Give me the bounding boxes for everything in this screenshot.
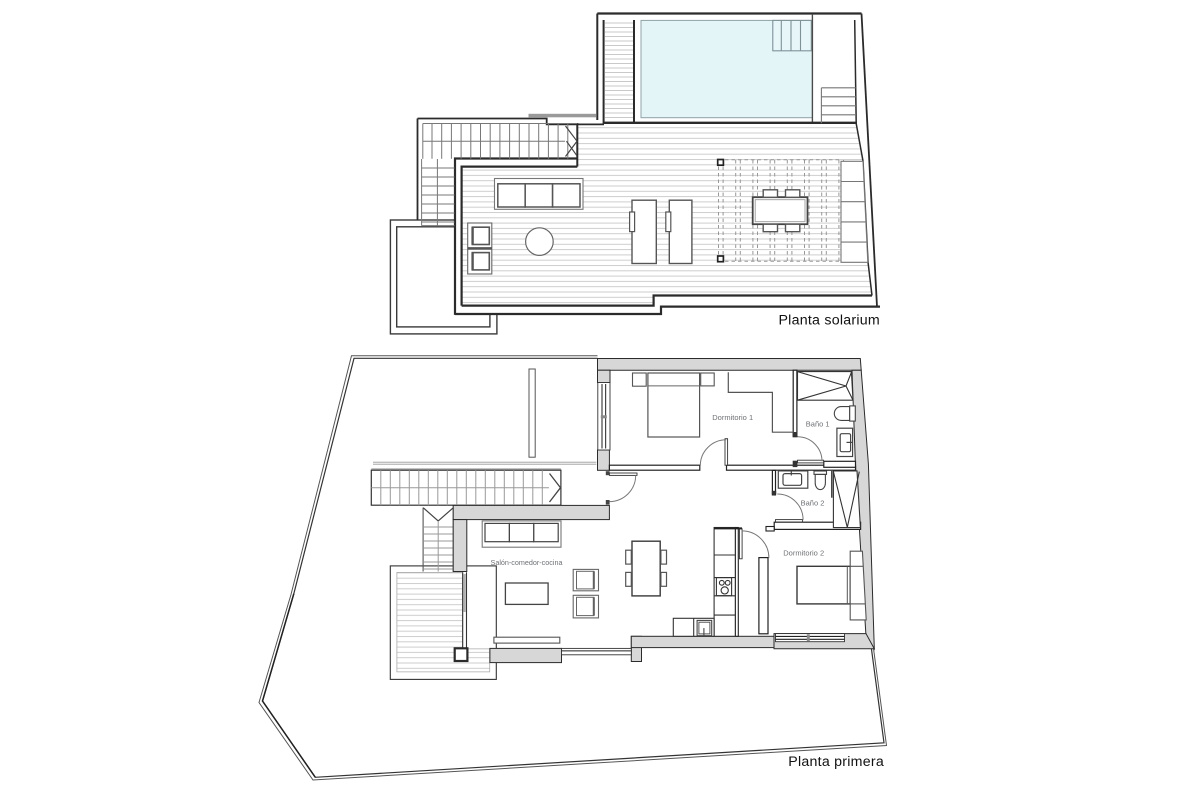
svg-text:Baño 2: Baño 2: [801, 499, 825, 508]
svg-text:Dormitorio 2: Dormitorio 2: [783, 549, 824, 558]
svg-text:Salón-comedor-cocina: Salón-comedor-cocina: [491, 558, 563, 567]
svg-text:Dormitorio 1: Dormitorio 1: [712, 413, 753, 422]
svg-text:Planta solarium: Planta solarium: [778, 313, 880, 329]
svg-text:Baño 1: Baño 1: [806, 419, 830, 428]
svg-text:Planta primera: Planta primera: [788, 754, 884, 770]
